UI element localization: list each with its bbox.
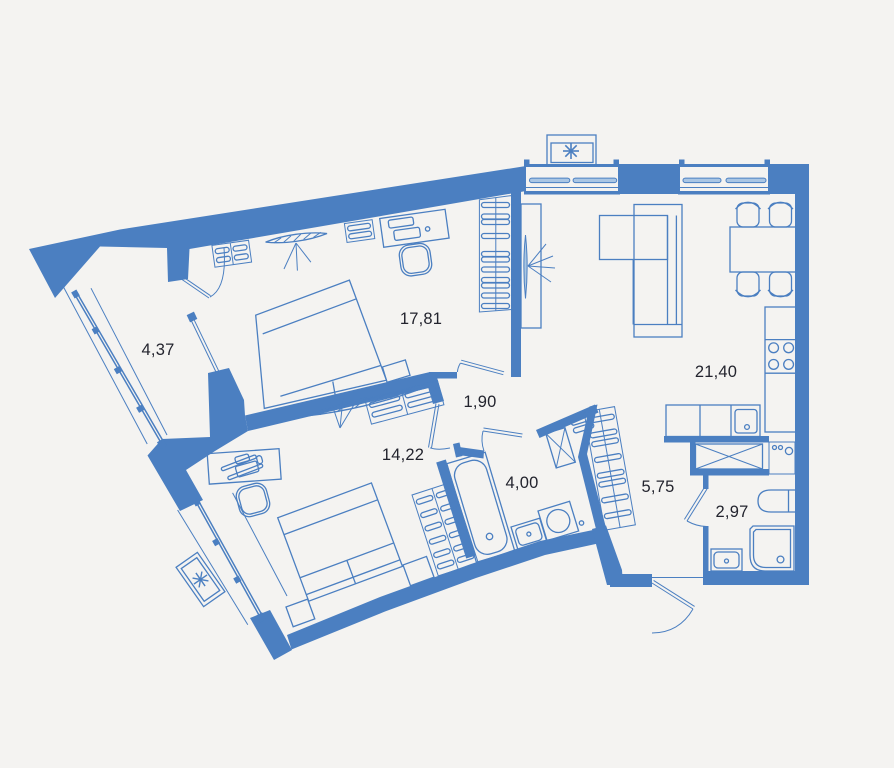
svg-text:4,37: 4,37 (142, 341, 175, 359)
svg-text:5,75: 5,75 (642, 478, 675, 496)
svg-text:4,00: 4,00 (506, 474, 539, 492)
svg-text:17,81: 17,81 (400, 310, 442, 328)
svg-text:21,40: 21,40 (695, 363, 737, 381)
svg-text:2,97: 2,97 (716, 503, 749, 521)
svg-text:1,90: 1,90 (464, 393, 497, 411)
svg-text:14,22: 14,22 (382, 446, 424, 464)
